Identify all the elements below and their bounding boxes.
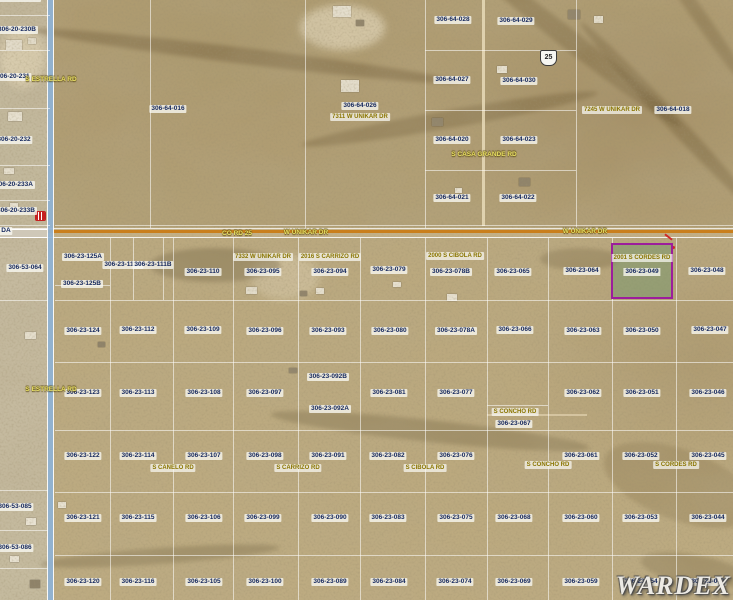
parcel-label: DA (0, 227, 13, 235)
parcel-label: 306-23-121 (64, 514, 101, 522)
parcel-label: 306-23-061 (562, 452, 599, 460)
grid-line (0, 108, 50, 109)
parcel-label: 306-23-092A (309, 405, 351, 413)
parcel-label: 306-20-232 (0, 136, 33, 144)
highway-shield-25: 25 (540, 50, 557, 66)
road-label: S CONCHO RD (492, 408, 539, 416)
building (333, 6, 351, 17)
grid-line (676, 238, 677, 600)
building (58, 502, 66, 508)
building (25, 332, 36, 339)
building (26, 518, 36, 525)
grid-line (0, 50, 50, 51)
building (393, 282, 401, 287)
building (568, 10, 580, 19)
highway-shield-label: 25 (545, 54, 553, 61)
grid-line (55, 300, 733, 301)
road-s-estrella (47, 0, 54, 600)
parcel-label: 306-64-022 (499, 194, 536, 202)
parcel-label: 306-23-093 (309, 327, 346, 335)
parcel-label: 306-23-098 (246, 452, 283, 460)
parcel-label: 306-20-230B (0, 26, 38, 34)
road-label: S CIBOLA RD (404, 464, 447, 472)
parcel-label: 306-20-230A (0, 0, 41, 2)
parcel-label: 306-23-047 (691, 326, 728, 334)
parcel-label: 306-64-026 (341, 102, 378, 110)
building (8, 112, 22, 121)
parcel-label: 306-23-115 (120, 514, 157, 522)
grid-line (305, 0, 306, 228)
parcel-label: 306-64-028 (434, 16, 471, 24)
building (4, 168, 14, 174)
building (455, 188, 462, 193)
parcel-label: 306-23-095 (244, 268, 281, 276)
grid-line (425, 238, 426, 600)
address-label: 7245 W UNIKAR DR (582, 106, 642, 114)
building (432, 118, 443, 126)
parcel-label: 306-23-105 (185, 578, 222, 586)
parcel-label: 306-23-090 (311, 514, 348, 522)
road-label: S ESTRELLA RD (25, 76, 76, 84)
parcel-map[interactable]: 25 306-20-230A306-20-230B306-20-231306-2… (0, 0, 733, 600)
grid-line (576, 0, 577, 228)
road-label: S CORDES RD (653, 461, 699, 469)
highlighted-parcel[interactable]: 2001 S CORDES RD 306-23-049 (611, 243, 673, 299)
parcel-label: 306-23-120 (64, 578, 101, 586)
parcel-label: 306-23-062 (564, 389, 601, 397)
parcel-label: 306-20-233B (0, 207, 37, 215)
building (30, 580, 40, 588)
parcel-label: 306-23-048 (688, 267, 725, 275)
grid-line (0, 15, 50, 16)
parcel-label: 306-23-074 (436, 578, 473, 586)
building (10, 556, 19, 562)
grid-line (55, 225, 733, 226)
parcel-label: 306-23-089 (311, 578, 348, 586)
parcel-label: 306-53-085 (0, 503, 34, 511)
parcel-label: 306-23-108 (185, 389, 222, 397)
grid-line (0, 165, 50, 166)
parcel-label: 306-23-096 (246, 327, 283, 335)
parcel-label: 306-23-078B (430, 268, 472, 276)
parcel-label: 306-23-114 (120, 452, 157, 460)
grid-line (0, 568, 48, 569)
road-label: CO RD 25 (222, 230, 252, 238)
address-label: 7311 W UNIKAR DR (330, 113, 390, 121)
address-label: 7332 W UNIKAR DR (233, 253, 293, 261)
parcel-label: 306-23-078A (435, 327, 477, 335)
parcel-label: 306-23-083 (369, 514, 406, 522)
building (98, 342, 105, 347)
road-label: S CONCHO RD (525, 461, 572, 469)
grid-line (55, 430, 733, 431)
parcel-label: 306-23-059 (562, 578, 599, 586)
parcel-label: 306-23-052 (622, 452, 659, 460)
grid-line (0, 530, 48, 531)
grid-line (487, 405, 548, 406)
parcel-label: 306-23-064 (563, 267, 600, 275)
building (246, 287, 257, 294)
parcel-label: 306-23-082 (369, 452, 406, 460)
parcel-label: 306-53-086 (0, 544, 34, 552)
grid-line (0, 490, 48, 491)
parcel-label: 306-23-125B (61, 280, 103, 288)
address-label: 2000 S CIBOLA RD (426, 252, 484, 260)
parcel-label: 306-23-122 (64, 452, 101, 460)
road-label: S CANELO RD (150, 464, 195, 472)
terrain-wash (40, 540, 281, 573)
parcel-label: 306-23-069 (495, 578, 532, 586)
parcel-label: 306-23-109 (184, 326, 221, 334)
parcel-label: 306-64-027 (433, 76, 470, 84)
parcel-label: 306-23-079 (370, 266, 407, 274)
grid-line (425, 110, 576, 111)
parcel-label: 306-23-068 (495, 514, 532, 522)
road-label: S ESTRELLA RD (25, 386, 76, 394)
grid-line (487, 238, 488, 600)
building (594, 16, 603, 23)
parcel-label: 306-23-111B (132, 261, 173, 269)
grid-line (55, 492, 733, 493)
grid-line (548, 238, 549, 600)
parcel-label: 306-64-016 (149, 105, 186, 113)
parcel-label: 306-23-112 (120, 326, 157, 334)
building (6, 40, 22, 50)
building (300, 291, 307, 296)
grid-line (55, 555, 733, 556)
parcel-label: 306-23-050 (623, 327, 660, 335)
parcel-label: 306-64-023 (500, 136, 537, 144)
parcel-label: 306-64-018 (654, 106, 691, 114)
grid-line (163, 238, 164, 300)
grid-line (55, 362, 733, 363)
parcel-label: 306-23-060 (562, 514, 599, 522)
grid-line (173, 238, 174, 600)
terrain-wash (593, 425, 733, 546)
parcel-label: 306-23-091 (309, 452, 346, 460)
parcel-label: 306-23-075 (437, 514, 474, 522)
parcel-label: 306-23-106 (185, 514, 222, 522)
parcel-label: 306-64-021 (433, 194, 470, 202)
address-label: 2016 S CARRIZO RD (299, 253, 361, 261)
parcel-label: 306-23-067 (495, 420, 532, 428)
road-label: W UNIKAR DR (284, 229, 328, 237)
building (28, 38, 36, 44)
road-label: W UNIKAR DR (563, 228, 607, 236)
wardex-watermark: WARDEX (616, 573, 731, 599)
red-map-icon (36, 212, 45, 220)
grid-line (425, 170, 576, 171)
building (289, 368, 297, 373)
parcel-label: 306-64-029 (497, 17, 534, 25)
parcel-label: 306-53-064 (6, 264, 43, 272)
parcel-label: 306-23-051 (623, 389, 660, 397)
parcel-label: 306-23-080 (371, 327, 408, 335)
grid-line (0, 300, 48, 301)
parcel-label: 306-23-063 (564, 327, 601, 335)
grid-line (233, 238, 234, 600)
grid-line (425, 0, 426, 228)
parcel-label: 306-23-124 (64, 327, 101, 335)
highlighted-parcel-number: 306-23-049 (623, 268, 660, 276)
building (316, 288, 324, 294)
parcel-label: 306-23-046 (689, 389, 726, 397)
building (497, 66, 507, 73)
parcel-label: 306-23-077 (437, 389, 474, 397)
parcel-label: 306-23-053 (622, 514, 659, 522)
parcel-label: 306-23-097 (246, 389, 283, 397)
parcel-label: 306-23-084 (370, 578, 407, 586)
grid-line (360, 238, 361, 600)
parcel-label: 306-23-100 (246, 578, 283, 586)
grid-line (0, 200, 50, 201)
parcel-label: 306-23-092B (307, 373, 349, 381)
parcel-label: 306-23-099 (244, 514, 281, 522)
road-label: S CARRIZO RD (274, 464, 321, 472)
road-label: S CASA GRANDE RD (451, 151, 517, 159)
parcel-label: 306-23-076 (437, 452, 474, 460)
grid-line (298, 238, 299, 600)
parcel-label: 306-64-020 (433, 136, 470, 144)
parcel-label: 306-23-107 (185, 452, 222, 460)
grid-line (133, 238, 134, 300)
parcel-label: 306-23-066 (496, 326, 533, 334)
parcel-label: 306-23-044 (689, 514, 726, 522)
parcel-label: 306-20-233A (0, 181, 35, 189)
parcel-label: 306-23-113 (120, 389, 157, 397)
parcel-label: 306-23-045 (689, 452, 726, 460)
building (356, 20, 364, 26)
parcel-label: 306-23-116 (120, 578, 157, 586)
grid-line (0, 225, 50, 226)
parcel-label: 306-23-094 (311, 268, 348, 276)
parcel-label: 306-23-125A (62, 253, 104, 261)
parcel-label: 306-23-110 (185, 268, 222, 276)
parcel-label: 306-23-081 (370, 389, 407, 397)
grid-line (110, 238, 111, 600)
road-s-casa-grande (482, 0, 485, 226)
building (519, 178, 530, 186)
grid-line (150, 0, 151, 228)
parcel-label: 306-23-065 (494, 268, 531, 276)
highlighted-parcel-address: 2001 S CORDES RD (612, 254, 673, 262)
building (341, 80, 359, 92)
parcel-label: 306-64-030 (500, 77, 537, 85)
